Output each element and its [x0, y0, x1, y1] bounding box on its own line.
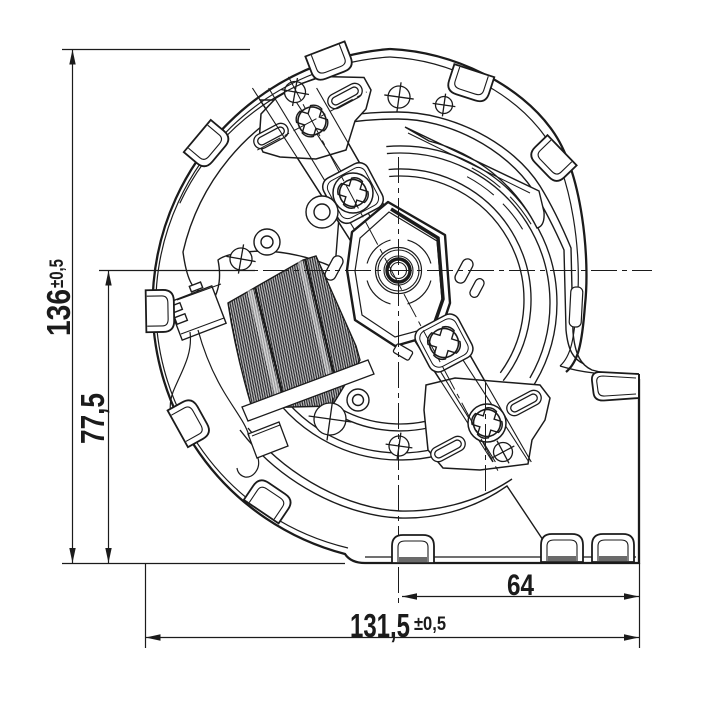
svg-text:136: 136 [40, 289, 77, 336]
svg-text:±0,5: ±0,5 [47, 259, 68, 288]
svg-text:77,5: 77,5 [74, 393, 111, 444]
svg-text:±0,5: ±0,5 [414, 614, 446, 635]
svg-text:64: 64 [507, 569, 534, 602]
svg-text:131,5: 131,5 [350, 607, 410, 644]
